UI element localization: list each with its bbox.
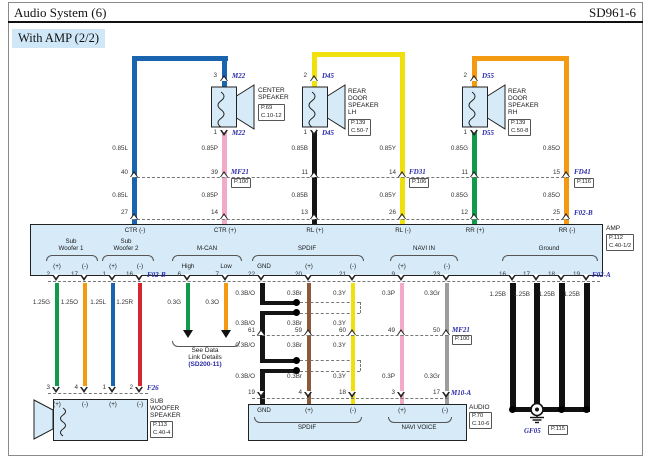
wire-gauge: 0.3Gr (412, 290, 440, 297)
center-speaker-ref: P.69C.10-12 (258, 104, 285, 121)
wire-gauge: 0.85G (438, 145, 468, 152)
page-title: Audio System (6) (14, 5, 106, 21)
wire-gauge: 0.3B/O (221, 290, 255, 297)
pin-number: 1 (449, 129, 467, 136)
ground-junction-dot (583, 406, 590, 413)
pin-arrow-icon (310, 130, 318, 136)
pin-arrow-icon (562, 213, 570, 219)
f26-dashed-line (48, 393, 148, 394)
group-label: NAVI VOICE (402, 424, 437, 431)
group-label: Woofer 2 (114, 245, 139, 252)
joint-mf21-ref: P.100 (231, 178, 251, 188)
pin-number: 14 (376, 169, 396, 176)
pin-arrow-icon (80, 275, 88, 281)
group-brace (252, 255, 364, 261)
shield-junction-dot (293, 357, 300, 364)
pin-number: 61 (235, 327, 255, 334)
wire-mcan-high (186, 283, 190, 330)
wire-gauge: 0.85Y (366, 192, 396, 199)
pin-arrow-icon (310, 75, 318, 81)
pin-arrow-icon (442, 329, 450, 335)
pin-number: 39 (198, 169, 218, 176)
wire-gauge: 1.25L (78, 299, 106, 306)
conn-ref: C.50-7 (351, 128, 368, 134)
wire-gauge: 0.3B/O (221, 320, 255, 327)
audio-name: AUDIO (469, 404, 490, 411)
pin-arrow-icon (397, 275, 405, 281)
wire-spdif-shield (260, 359, 297, 363)
audio-terminal: (+) (398, 407, 406, 414)
pin-arrow-icon (220, 75, 228, 81)
shield-dashed-line (360, 302, 361, 313)
pin-arrow-icon (257, 329, 265, 335)
header-divider (8, 21, 643, 23)
wire-gauge: 0.3Y (320, 320, 346, 327)
wire-navi-plus (400, 283, 404, 404)
shield-junction-dot (293, 299, 300, 306)
joint-fd41-ref: P.116 (574, 178, 594, 188)
pin-arrow-icon (348, 392, 356, 398)
connector-label: D45 (322, 72, 334, 80)
pin-arrow-icon (80, 387, 88, 393)
speaker-terminal: (-) (82, 401, 88, 408)
amp-terminal: (+) (398, 263, 406, 270)
pin-arrow-icon (310, 171, 318, 177)
wire-gauge: 1.25O (50, 299, 78, 306)
wire-ground-2 (534, 283, 540, 409)
pin-number: 1 (88, 271, 106, 278)
pin-number: 1 (289, 129, 307, 136)
amp-terminal: CTR (+) (214, 227, 236, 234)
harness-ref-f02b: F02-B (574, 209, 593, 217)
connector-m10a-label: M10-A (451, 389, 471, 397)
pin-arrow-icon (304, 392, 312, 398)
connector-label: D55 (482, 72, 494, 80)
pin-number: 16 (488, 271, 506, 278)
joint-fd31-label: FD31 (409, 168, 426, 176)
wire-gauge: 0.85B (278, 145, 308, 152)
pin-arrow-icon (562, 171, 570, 177)
joint-fd31-ref: P.106 (409, 178, 429, 188)
pin-number: 13 (288, 209, 308, 216)
pin-number: 2 (115, 384, 133, 391)
datalink-ref: (SD200-11) (188, 361, 221, 368)
connector-f26-label: F26 (147, 384, 159, 392)
pin-number: 6 (163, 271, 181, 278)
harness-ref-f02a: F02-A (592, 271, 611, 279)
wire-spdif-shield (260, 301, 297, 305)
pin-number: 19 (562, 271, 580, 278)
pin-number: 23 (422, 271, 440, 278)
ground-junction-dot (558, 406, 565, 413)
wire-rr-minus-h (472, 56, 569, 61)
group-brace (46, 255, 98, 261)
rear-rh-ref: P.139C.50-8 (508, 119, 531, 136)
pin-number: 16 (115, 271, 133, 278)
pin-arrow-icon (310, 213, 318, 219)
amp-bottom-dashed-line (48, 281, 600, 282)
page-ref: P.69 (261, 105, 272, 111)
joint-mf21-ref: P.100 (452, 335, 472, 345)
rear-lh-ref: P.139C.50-7 (348, 119, 371, 136)
pin-arrow-icon (257, 392, 265, 398)
wire-gauge: 1.25R (105, 299, 133, 306)
group-label: SPDIF (298, 424, 316, 431)
conn-ref: C.10-12 (261, 113, 282, 119)
pin-number: 20 (284, 271, 302, 278)
pin-number: 15 (540, 169, 560, 176)
joint-fd41-label: FD41 (574, 168, 591, 176)
wire-spdif-shield (260, 311, 297, 315)
pin-arrow-icon (183, 275, 191, 281)
wire-spdif-shield (260, 337, 265, 359)
rear-door-speaker-rh-icon (461, 83, 507, 131)
pin-arrow-icon (348, 275, 356, 281)
wire-gauge: 0.3Br (274, 290, 302, 297)
audio-terminal: (-) (442, 407, 448, 414)
connector-label: M22 (232, 72, 245, 80)
wire-spdif-minus (351, 283, 355, 404)
wire-gauge: 1.25G (22, 299, 50, 306)
page-ref: P.139 (511, 120, 525, 126)
amp-name: AMP (606, 225, 620, 232)
pin-arrow-icon (348, 329, 356, 335)
pin-arrow-icon (442, 275, 450, 281)
wiring-diagram-page: Audio System (6) SD961-6 With AMP (2/2) … (0, 0, 650, 468)
pin-arrow-icon (397, 329, 405, 335)
pin-arrow-icon (52, 387, 60, 393)
subwoofer-name: SPEAKER (150, 412, 181, 419)
amp-terminal: (-) (444, 263, 450, 270)
pin-number: 2 (289, 72, 307, 79)
pin-number: 3 (199, 72, 217, 79)
pin-arrow-icon (130, 213, 138, 219)
wire-gauge: 0.3B/O (221, 373, 255, 380)
wire-gauge: 0.3P (369, 290, 395, 297)
ground-point-label: GF05 (524, 427, 541, 435)
pin-arrow-icon (470, 130, 478, 136)
ground-symbol-icon (527, 400, 547, 426)
wire-sw2-minus (138, 283, 142, 388)
pin-arrow-icon (470, 213, 478, 219)
speaker-terminal: (+) (53, 401, 61, 408)
conn-ref: C.40-4 (153, 430, 170, 436)
pin-arrow-icon (442, 392, 450, 398)
diagram-code: SD961-6 (480, 5, 636, 21)
amp-terminal: RL (-) (395, 227, 411, 234)
amp-terminal: Low (220, 263, 231, 270)
amp-terminal: (-) (350, 263, 356, 270)
wire-gauge: 0.85O (530, 145, 560, 152)
pin-number: 11 (288, 169, 308, 176)
joint-mf21-label: MF21 (231, 168, 249, 176)
pin-arrow-icon (130, 171, 138, 177)
amp-terminal: (+) (305, 263, 313, 270)
wire-gauge: 0.3Gr (412, 373, 440, 380)
conn-ref: C.40-1/2 (609, 243, 631, 249)
page-ref: P.139 (351, 120, 365, 126)
mcan-arrow-icon (221, 330, 231, 338)
rear-lh-name: LH (348, 109, 356, 116)
wire-gauge: 0.3P (369, 373, 395, 380)
audio-terminal: (+) (305, 407, 313, 414)
speaker-terminal: (+) (109, 401, 117, 408)
pin-number: 4 (60, 384, 78, 391)
group-brace (102, 255, 154, 261)
group-brace (388, 417, 452, 423)
pin-arrow-icon (304, 275, 312, 281)
rear-door-speaker-lh-icon (301, 83, 347, 131)
speaker-terminal: (-) (137, 401, 143, 408)
wire-gauge: 1.25B (552, 291, 580, 298)
shield-dashed-line (360, 360, 361, 371)
amp-terminal: RL (+) (306, 227, 323, 234)
shield-junction-dot (293, 309, 300, 316)
pin-arrow-icon (221, 275, 229, 281)
group-label: Woofer 1 (59, 245, 84, 252)
wire-gauge: 0.85B (278, 192, 308, 199)
pin-number: 17 (60, 271, 78, 278)
wire-gauge: 0.3Y (320, 373, 346, 380)
pin-number: 2 (449, 72, 467, 79)
pin-number: 3 (375, 389, 395, 396)
pin-number: 1 (199, 129, 217, 136)
pin-number: 1 (88, 384, 106, 391)
wire-gauge: 0.85Y (366, 145, 396, 152)
wire-gauge: 0.85G (438, 192, 468, 199)
pin-arrow-icon (220, 171, 228, 177)
pin-arrow-icon (220, 213, 228, 219)
pin-arrow-icon (470, 75, 478, 81)
pin-number: 60 (326, 327, 346, 334)
group-label: Ground (539, 245, 560, 252)
amp-terminal: RR (+) (466, 227, 484, 234)
pin-arrow-icon (257, 275, 265, 281)
pin-number: 21 (328, 271, 346, 278)
m10a-dashed-line (252, 398, 448, 399)
audio-terminal: (-) (350, 407, 356, 414)
amp-terminal: GND (257, 263, 271, 270)
pin-number: 3 (32, 384, 50, 391)
pin-arrow-icon (52, 275, 60, 281)
subwoofer-coil-icon (57, 406, 69, 438)
group-label: M-CAN (197, 245, 217, 252)
pin-number: 50 (420, 327, 440, 334)
subwoofer-horn-icon (33, 399, 54, 440)
group-brace (172, 255, 242, 261)
pin-arrow-icon (220, 130, 228, 136)
pin-number: 18 (537, 271, 555, 278)
pin-number: 59 (282, 327, 302, 334)
wire-ctr-minus-v (132, 56, 137, 224)
wire-ground-4 (584, 283, 590, 409)
amp-ref: P.112C.40-1/2 (606, 234, 634, 251)
pin-number: 7 (201, 271, 219, 278)
amp-terminal: (+) (109, 263, 117, 270)
pin-number: 25 (540, 209, 560, 216)
ground-point-ref: P.115 (548, 425, 568, 435)
pin-arrow-icon (398, 213, 406, 219)
pin-number: 14 (198, 209, 218, 216)
amp-terminal: RR (-) (559, 227, 576, 234)
wire-ground-1 (510, 283, 516, 409)
group-label: NAVI IN (413, 245, 435, 252)
pin-number: 22 (237, 271, 255, 278)
pin-arrow-icon (135, 275, 143, 281)
connector-label: D45 (322, 129, 334, 137)
wire-gauge: 0.85L (98, 192, 128, 199)
group-label: SPDIF (298, 245, 316, 252)
connector-label: D55 (482, 129, 494, 137)
wire-spdif-plus (307, 283, 311, 404)
wire-gauge: 1.25B (527, 291, 555, 298)
pin-number: 12 (448, 209, 468, 216)
wire-gauge: 0.3Br (274, 373, 302, 380)
wire-gauge: 0.3O (193, 299, 219, 306)
wire-gauge: 0.3Br (274, 342, 302, 349)
wire-ground-3 (559, 283, 565, 409)
wire-gauge: 0.3Y (320, 342, 346, 349)
group-label: Sub (65, 238, 76, 245)
audio-ref: P.70C.10-6 (469, 412, 492, 429)
wire-gauge: 0.85P (188, 192, 218, 199)
wire-gauge: 0.3Y (320, 290, 346, 297)
ground-bus (510, 407, 590, 412)
group-brace (390, 255, 458, 261)
wire-rl-minus-h (312, 52, 405, 57)
amp-terminal: High (182, 263, 195, 270)
mcan-arrow-icon (183, 330, 193, 338)
joint-row-dashed-line (132, 177, 569, 178)
amp-terminal: (+) (53, 263, 61, 270)
wire-spdif-shield (260, 283, 265, 301)
audio-terminal: GND (257, 407, 271, 414)
wire-gauge: 0.85L (98, 145, 128, 152)
subwoofer-ref: P.113C.40-4 (150, 421, 173, 438)
pin-number: 49 (375, 327, 395, 334)
pin-arrow-icon (398, 171, 406, 177)
wire-gauge: 1.25B (502, 291, 530, 298)
wire-gauge: 0.85O (530, 192, 560, 199)
pin-arrow-icon (470, 171, 478, 177)
center-speaker-name: SPEAKER (258, 94, 289, 101)
conn-ref: C.10-6 (472, 421, 489, 427)
conn-ref: C.50-8 (511, 128, 528, 134)
page-ref: P.112 (609, 235, 623, 241)
group-label: Sub (120, 238, 131, 245)
wire-gauge: 0.3Br (274, 320, 302, 327)
wire-ctr-minus-h (132, 56, 228, 61)
amp-terminal: CTR (-) (125, 227, 146, 234)
ground-junction-dot (509, 406, 516, 413)
pin-arrow-icon (397, 392, 405, 398)
pin-number: 26 (376, 209, 396, 216)
page-ref: P.70 (472, 413, 483, 419)
wire-rr-minus-v (564, 56, 569, 224)
wire-gauge: 0.3G (155, 299, 181, 306)
page-ref: P.113 (153, 422, 167, 428)
pin-number: 40 (108, 169, 128, 176)
wire-rl-minus-v (400, 52, 405, 224)
amp-terminal: (-) (137, 263, 143, 270)
center-speaker-icon (210, 83, 256, 131)
pin-number: 17 (512, 271, 530, 278)
amp-top-dashed-line (132, 219, 569, 220)
joint-mf21-label: MF21 (452, 326, 470, 334)
pin-number: 17 (420, 389, 440, 396)
connector-label: M22 (232, 129, 245, 137)
group-brace (502, 255, 598, 261)
variant-label: With AMP (2/2) (12, 29, 105, 48)
pin-number: 27 (108, 209, 128, 216)
pin-arrow-icon (582, 275, 590, 281)
wire-gauge: 0.85P (188, 145, 218, 152)
pin-arrow-icon (135, 387, 143, 393)
wire-navi-minus (445, 283, 449, 404)
pin-number: 19 (235, 389, 255, 396)
rear-rh-name: RH (508, 109, 517, 116)
wire-rl-minus-drop (312, 52, 317, 87)
pin-number: 4 (282, 389, 302, 396)
pin-number: 11 (448, 169, 468, 176)
pin-number: 9 (377, 271, 395, 278)
amp-terminal: (-) (82, 263, 88, 270)
pin-arrow-icon (304, 329, 312, 335)
pin-number: 2 (32, 271, 50, 278)
group-brace (254, 417, 362, 423)
pin-number: 18 (326, 389, 346, 396)
